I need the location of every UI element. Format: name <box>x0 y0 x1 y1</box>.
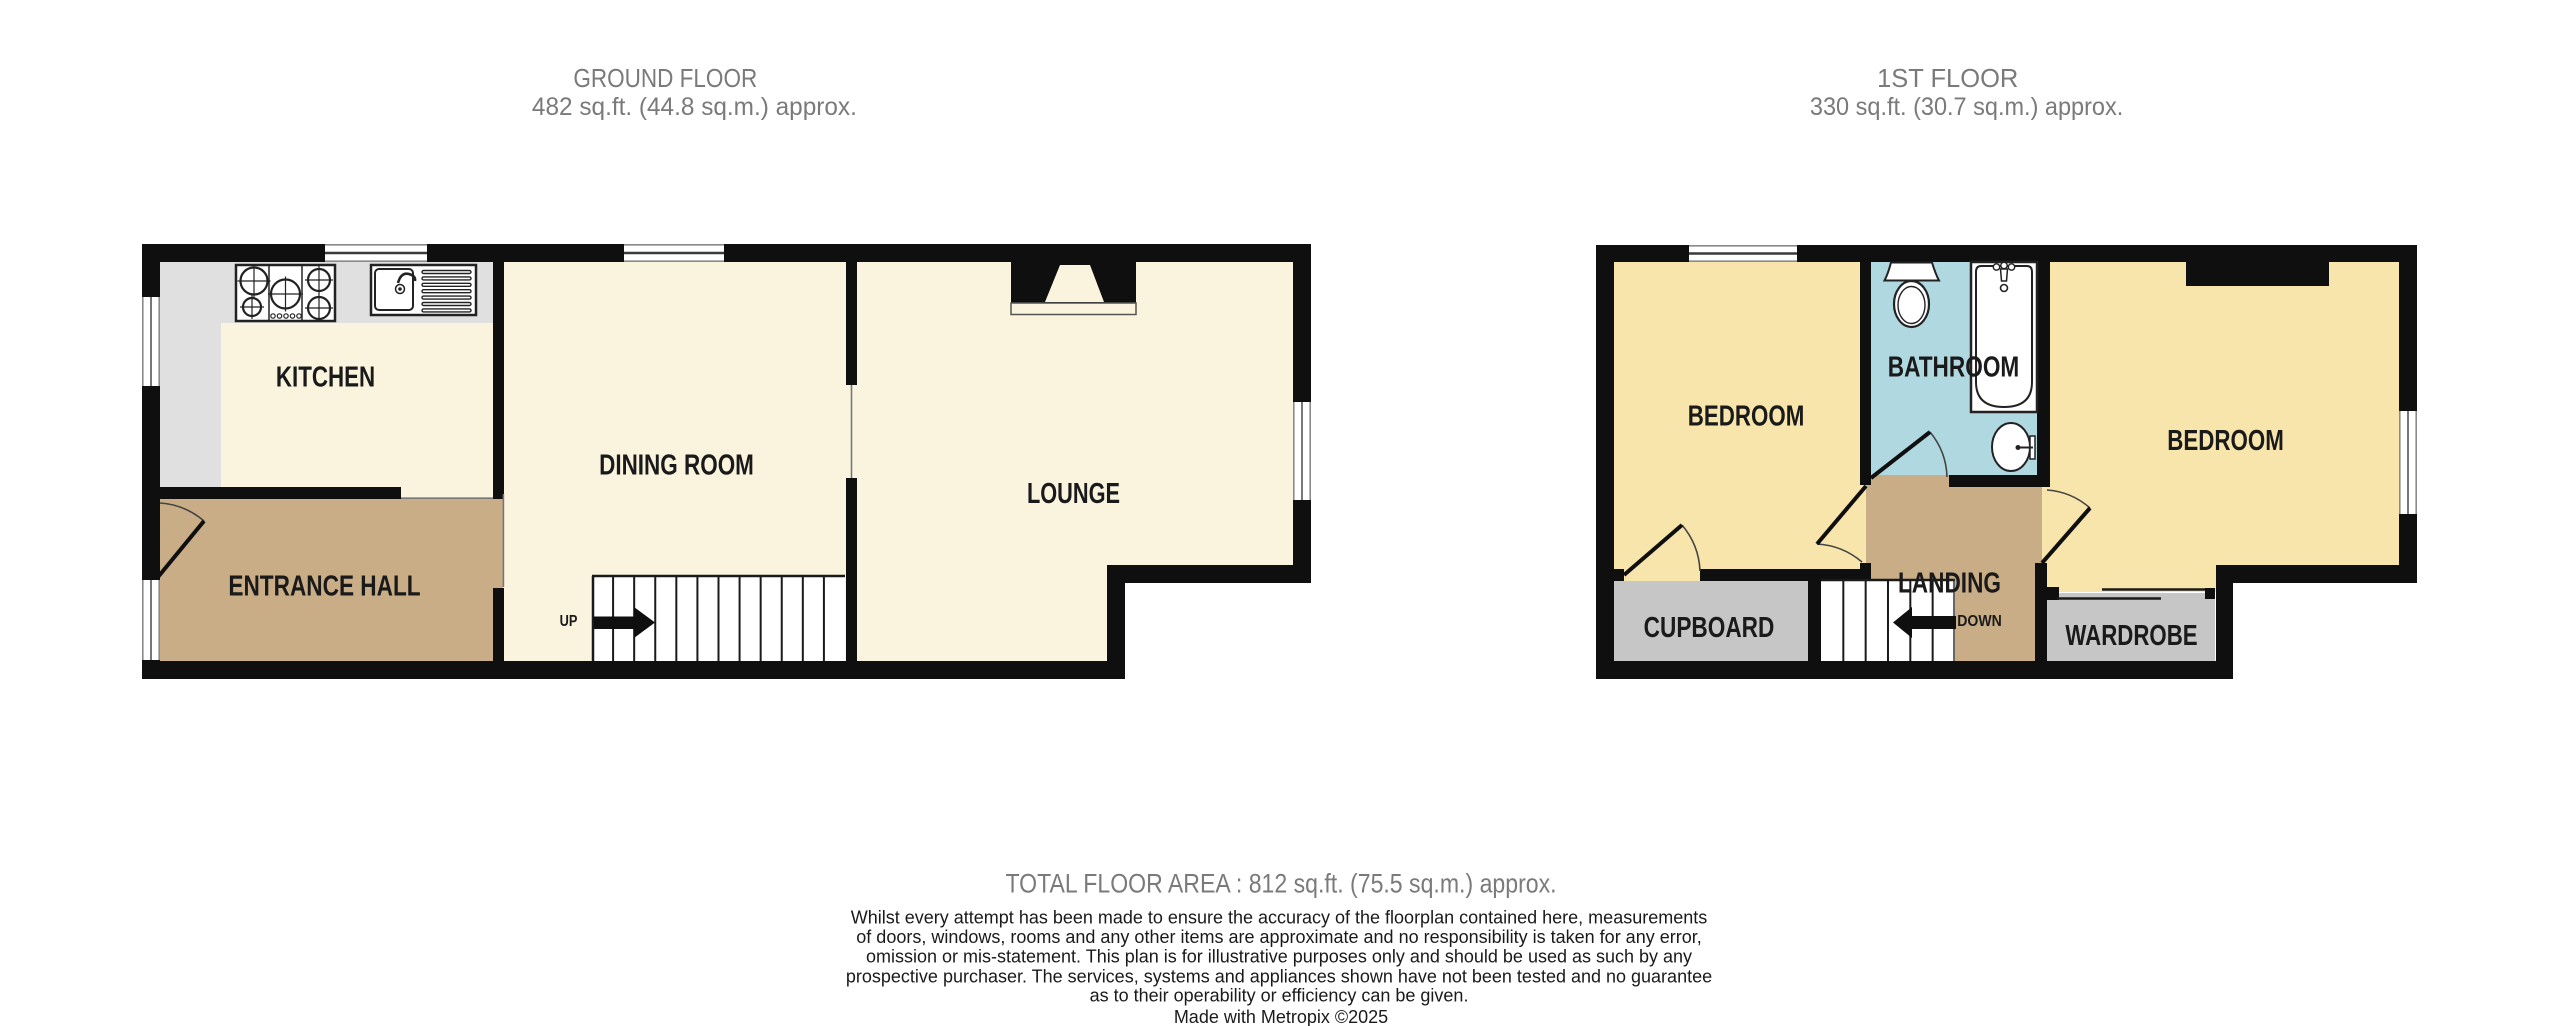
svg-text:WARDROBE: WARDROBE <box>2065 620 2197 651</box>
svg-text:482 sq.ft. (44.8 sq.m.) approx: 482 sq.ft. (44.8 sq.m.) approx. <box>532 94 857 121</box>
svg-text:CUPBOARD: CUPBOARD <box>1644 610 1775 643</box>
svg-text:DOWN: DOWN <box>1957 612 2002 630</box>
svg-text:GROUND FLOOR: GROUND FLOOR <box>573 65 757 94</box>
svg-text:BEDROOM: BEDROOM <box>2167 425 2284 456</box>
svg-text:omission or mis-statement. Thi: omission or mis-statement. This plan is … <box>866 947 1692 967</box>
svg-text:1ST FLOOR: 1ST FLOOR <box>1877 65 2018 93</box>
svg-text:KITCHEN: KITCHEN <box>276 362 375 393</box>
svg-text:Made with Metropix ©2025: Made with Metropix ©2025 <box>1174 1007 1388 1026</box>
svg-text:DINING ROOM: DINING ROOM <box>599 450 754 481</box>
svg-text:of doors, windows, rooms and a: of doors, windows, rooms and any other i… <box>856 927 1701 947</box>
svg-text:prospective purchaser. The ser: prospective purchaser. The services, sys… <box>846 966 1712 986</box>
svg-text:LOUNGE: LOUNGE <box>1027 478 1120 510</box>
svg-text:as to their operability or eff: as to their operability or efficiency ca… <box>1090 986 1469 1006</box>
svg-text:BATHROOM: BATHROOM <box>1888 350 2019 383</box>
svg-text:UP: UP <box>560 613 578 631</box>
svg-text:BEDROOM: BEDROOM <box>1688 401 1805 432</box>
svg-text:ENTRANCE HALL: ENTRANCE HALL <box>228 569 420 602</box>
svg-text:330 sq.ft. (30.7 sq.m.) approx: 330 sq.ft. (30.7 sq.m.) approx. <box>1810 93 2123 121</box>
svg-text:TOTAL FLOOR AREA : 812 sq.ft.: TOTAL FLOOR AREA : 812 sq.ft. (75.5 sq.m… <box>1005 869 1556 899</box>
svg-text:Whilst every attempt has been: Whilst every attempt has been made to en… <box>851 908 1707 928</box>
svg-text:LANDING: LANDING <box>1898 566 2001 599</box>
